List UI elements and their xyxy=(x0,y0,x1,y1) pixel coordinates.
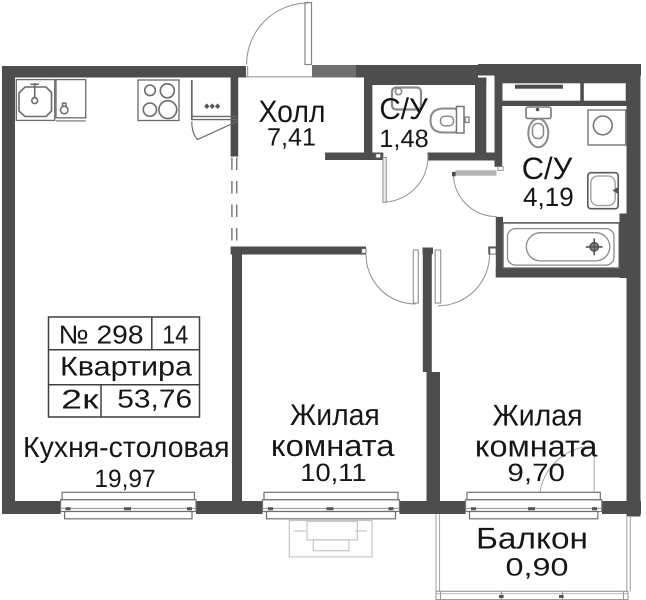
svg-text:Жилая: Жилая xyxy=(290,399,380,432)
svg-text:1,48: 1,48 xyxy=(379,125,428,153)
svg-text:Кухня-столовая: Кухня-столовая xyxy=(23,432,230,464)
svg-text:0,90: 0,90 xyxy=(506,554,569,582)
svg-text:14: 14 xyxy=(162,320,188,350)
svg-text:10,11: 10,11 xyxy=(300,459,366,487)
svg-text:2к: 2к xyxy=(61,385,99,415)
svg-text:19,97: 19,97 xyxy=(94,465,155,493)
svg-text:4,19: 4,19 xyxy=(523,182,574,212)
svg-text:№ 298: № 298 xyxy=(59,320,144,350)
svg-text:Квартира: Квартира xyxy=(60,352,193,382)
svg-text:7,41: 7,41 xyxy=(267,124,316,152)
svg-text:С/У: С/У xyxy=(379,93,428,126)
svg-text:53,76: 53,76 xyxy=(117,384,192,414)
svg-text:9,70: 9,70 xyxy=(507,459,565,487)
svg-text:Жилая: Жилая xyxy=(493,400,583,433)
svg-text:Балкон: Балкон xyxy=(476,523,588,556)
svg-text:С/У: С/У xyxy=(522,151,573,186)
